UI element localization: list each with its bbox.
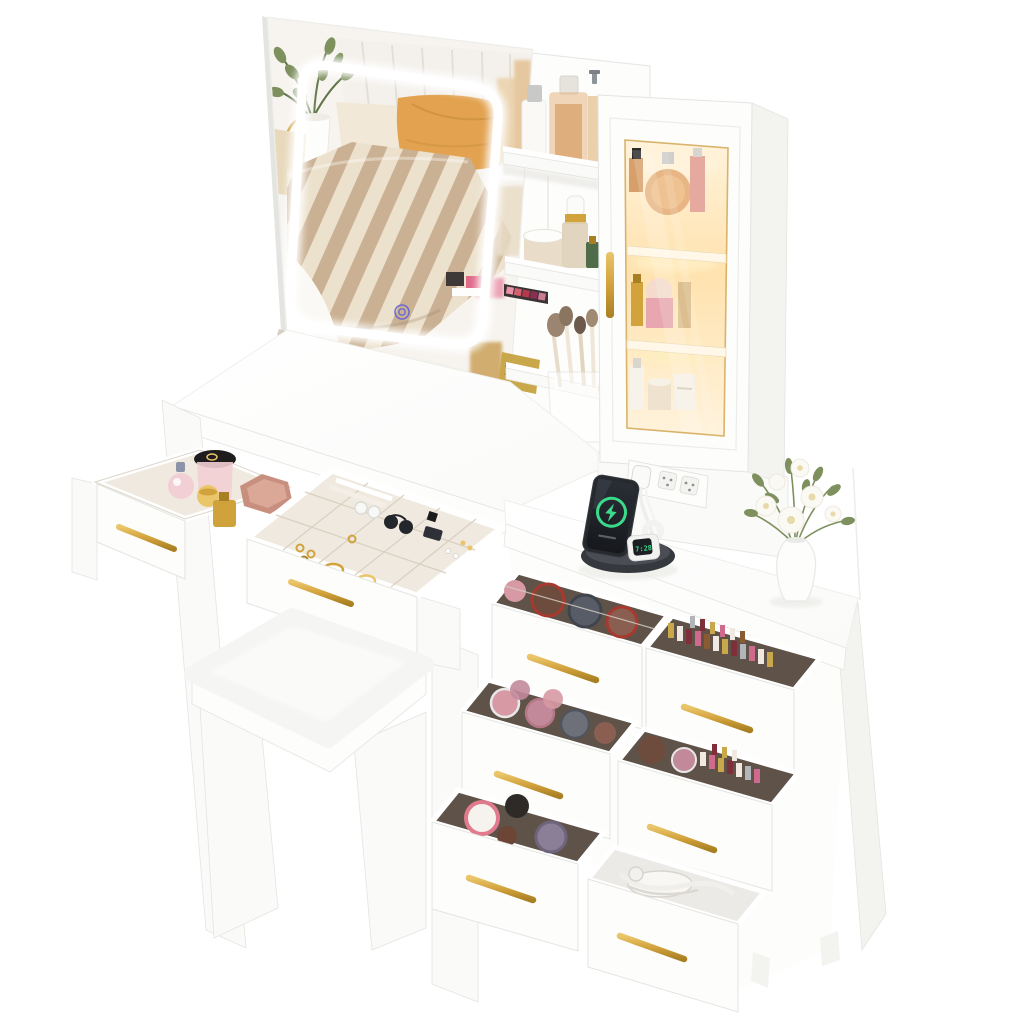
outlet[interactable] — [657, 471, 677, 491]
cabinet-handle[interactable] — [606, 252, 614, 318]
cabinet-glass-interior — [625, 140, 728, 436]
vase-body — [777, 540, 816, 601]
outlet[interactable] — [679, 476, 699, 496]
display-cabinet — [589, 70, 788, 484]
vanity-product-photo: 7:28 — [0, 0, 1024, 1024]
cabinet-side-face — [748, 103, 788, 484]
scene-canvas: 7:28 — [0, 0, 1024, 1024]
